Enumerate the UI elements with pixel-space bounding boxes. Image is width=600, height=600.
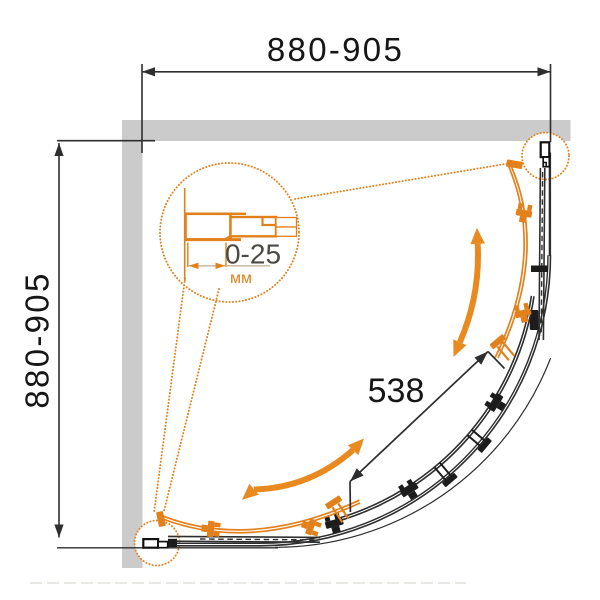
svg-text:538: 538 [368,372,425,410]
svg-text:880-905: 880-905 [267,31,404,68]
svg-text:880-905: 880-905 [19,271,56,408]
svg-text:0-25: 0-25 [225,239,281,270]
svg-text:мм: мм [230,270,252,287]
